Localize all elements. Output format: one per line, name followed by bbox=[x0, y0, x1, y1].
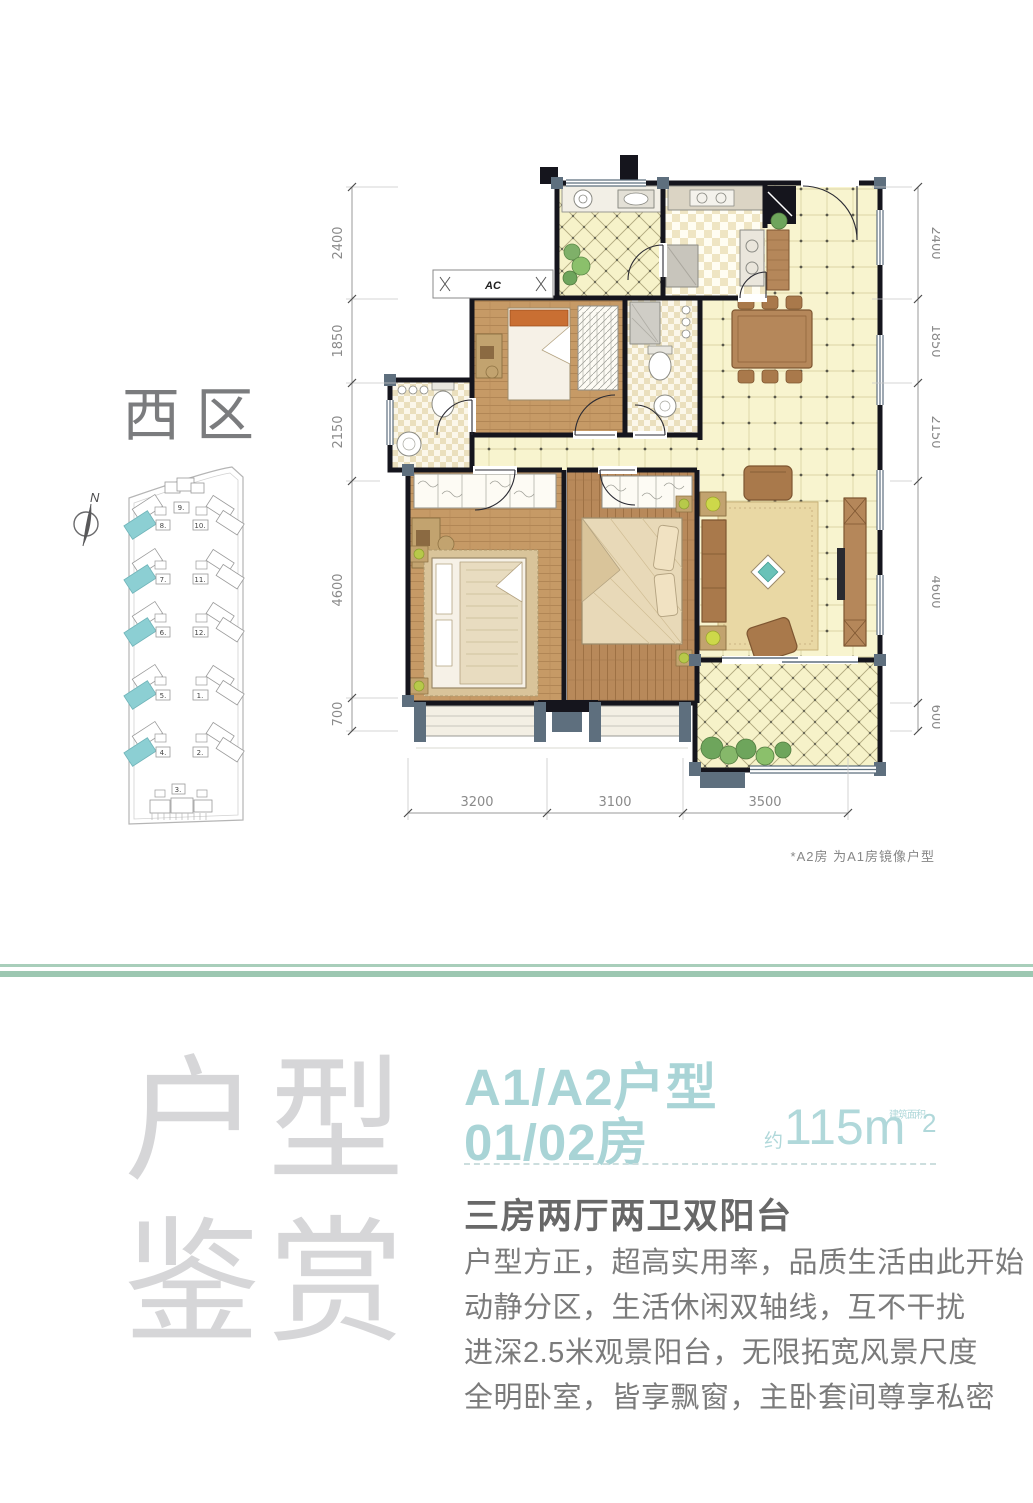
area-block: 约 115m 建筑面积 2 bbox=[764, 1104, 939, 1154]
watermark-char: 鉴 bbox=[124, 1212, 266, 1358]
district-label: 西区 bbox=[122, 368, 270, 452]
ac-platform: AC bbox=[433, 270, 553, 298]
dim-right-1: 1850 bbox=[928, 324, 940, 357]
description-line: 进深2.5米观景阳台，无限拓宽风景尺度 bbox=[464, 1336, 1025, 1381]
layout-subtitle: 三房两厅两卫双阳台 bbox=[464, 1188, 793, 1239]
dim-left-0: 2400 bbox=[331, 226, 346, 259]
area-superscript: 2 bbox=[922, 1108, 936, 1139]
description-line: 全明卧室，皆享飘窗，主卧套间尊享私密 bbox=[464, 1381, 1025, 1426]
dim-left-1: 1850 bbox=[331, 324, 346, 357]
building-label: 2. bbox=[197, 749, 204, 757]
unit-title-line2: 01/02房 bbox=[464, 1115, 718, 1170]
building-label: 10. bbox=[194, 522, 205, 530]
area-note: 建筑面积 bbox=[889, 1106, 925, 1121]
dim-right-3: 4600 bbox=[928, 575, 940, 608]
dim-left-2: 2150 bbox=[331, 415, 346, 448]
site-plan: N 9. 8. bbox=[60, 460, 280, 850]
divider-line-bottom bbox=[0, 971, 1033, 977]
building-label: 3. bbox=[175, 786, 182, 794]
building-label: 5. bbox=[160, 692, 167, 700]
unit-title-line1: A1/A2户型 bbox=[464, 1060, 718, 1115]
building-label: 12. bbox=[194, 629, 205, 637]
watermark-char: 型 bbox=[268, 1050, 410, 1196]
description-line: 动静分区，生活休闲双轴线，互不干扰 bbox=[464, 1291, 1025, 1336]
dim-bottom-2: 3500 bbox=[748, 795, 781, 810]
dim-bottom-0: 3200 bbox=[460, 795, 493, 810]
mirror-footnote: *A2房 为A1房镜像户型 bbox=[560, 846, 935, 865]
dim-right-0: 2400 bbox=[928, 226, 940, 259]
floor-plan: AC bbox=[320, 150, 940, 870]
building-label: 11. bbox=[194, 576, 205, 584]
description: 户型方正，超高实用率，品质生活由此开始 动静分区，生活休闲双轴线，互不干扰 进深… bbox=[464, 1246, 1025, 1426]
building-label: 9. bbox=[178, 504, 185, 512]
building-label: 6. bbox=[160, 629, 167, 637]
dim-right-4: 600 bbox=[928, 705, 940, 730]
dim-right-2: 2150 bbox=[928, 415, 940, 448]
watermark-char: 赏 bbox=[268, 1212, 410, 1358]
dim-left-3: 4600 bbox=[331, 573, 346, 606]
section-divider bbox=[0, 964, 1033, 977]
area-approx: 约 bbox=[764, 1126, 783, 1153]
building-label: 7. bbox=[160, 576, 167, 584]
watermark-char: 户 bbox=[124, 1050, 266, 1196]
north-label: N bbox=[90, 490, 100, 505]
unit-title: A1/A2户型 01/02房 bbox=[464, 1060, 718, 1170]
area-value: 115m bbox=[784, 1102, 905, 1152]
building-label: 8. bbox=[160, 522, 167, 530]
north-compass-icon: N bbox=[74, 490, 100, 546]
ac-label: AC bbox=[484, 280, 502, 292]
description-line: 户型方正，超高实用率，品质生活由此开始 bbox=[464, 1246, 1025, 1291]
building-label: 1. bbox=[197, 692, 204, 700]
building-label: 4. bbox=[160, 749, 167, 757]
dim-bottom-1: 3100 bbox=[598, 795, 631, 810]
watermark-text: 户 型 鉴 赏 bbox=[124, 1050, 410, 1358]
dim-left-4: 700 bbox=[331, 702, 346, 727]
page: 西区 N 9. bbox=[0, 0, 1033, 1503]
dashed-separator bbox=[464, 1163, 936, 1165]
